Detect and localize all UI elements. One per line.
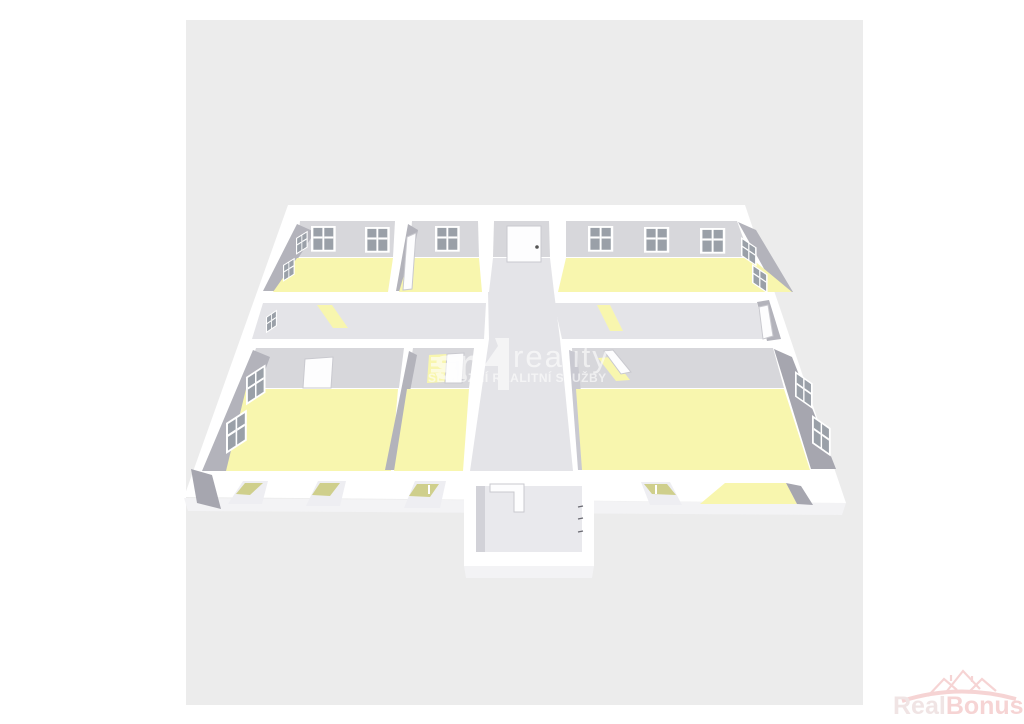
- window-icon: [644, 227, 669, 253]
- corridor-floor: [252, 303, 486, 339]
- realbonus-logo: RealBonus.cz: [893, 671, 1024, 720]
- entrance-hall: [489, 221, 554, 292]
- wall-face: [476, 486, 485, 552]
- window-icon: [588, 226, 613, 252]
- watermark-brand: reality: [513, 339, 610, 374]
- window-icon: [700, 228, 725, 254]
- room-top-middle: [396, 221, 482, 292]
- window-icon: [311, 226, 336, 252]
- corridor-right: [554, 300, 781, 341]
- corridor-left: [252, 303, 486, 339]
- vestibule-floor: [476, 486, 582, 552]
- hall-floor: [489, 258, 554, 292]
- page: sn reality SERIÓZNÍ REALITNÍ SLUŽBY Real…: [0, 0, 1024, 724]
- window-icon: [365, 227, 390, 253]
- door-icon: [507, 226, 541, 262]
- vestibule: [476, 484, 583, 552]
- door-icon: [303, 357, 333, 388]
- realbonus-text-primary: Real: [893, 692, 946, 720]
- window-icon: [435, 226, 460, 252]
- room-floor: [576, 389, 810, 470]
- realbonus-text: RealBonus.cz: [893, 692, 1024, 720]
- room-floor: [394, 389, 469, 471]
- watermark-tagline: SERIÓZNÍ REALITNÍ SLUŽBY: [428, 370, 607, 385]
- vestibule-shadow: [464, 566, 594, 578]
- watermark: sn reality SERIÓZNÍ REALITNÍ SLUŽBY: [428, 338, 610, 390]
- realbonus-text-secondary: Bonus: [946, 692, 1024, 720]
- door-handle-icon: [535, 245, 539, 249]
- floorplan-svg: sn reality SERIÓZNÍ REALITNÍ SLUŽBY Real…: [0, 0, 1024, 724]
- corridor-floor: [554, 303, 766, 339]
